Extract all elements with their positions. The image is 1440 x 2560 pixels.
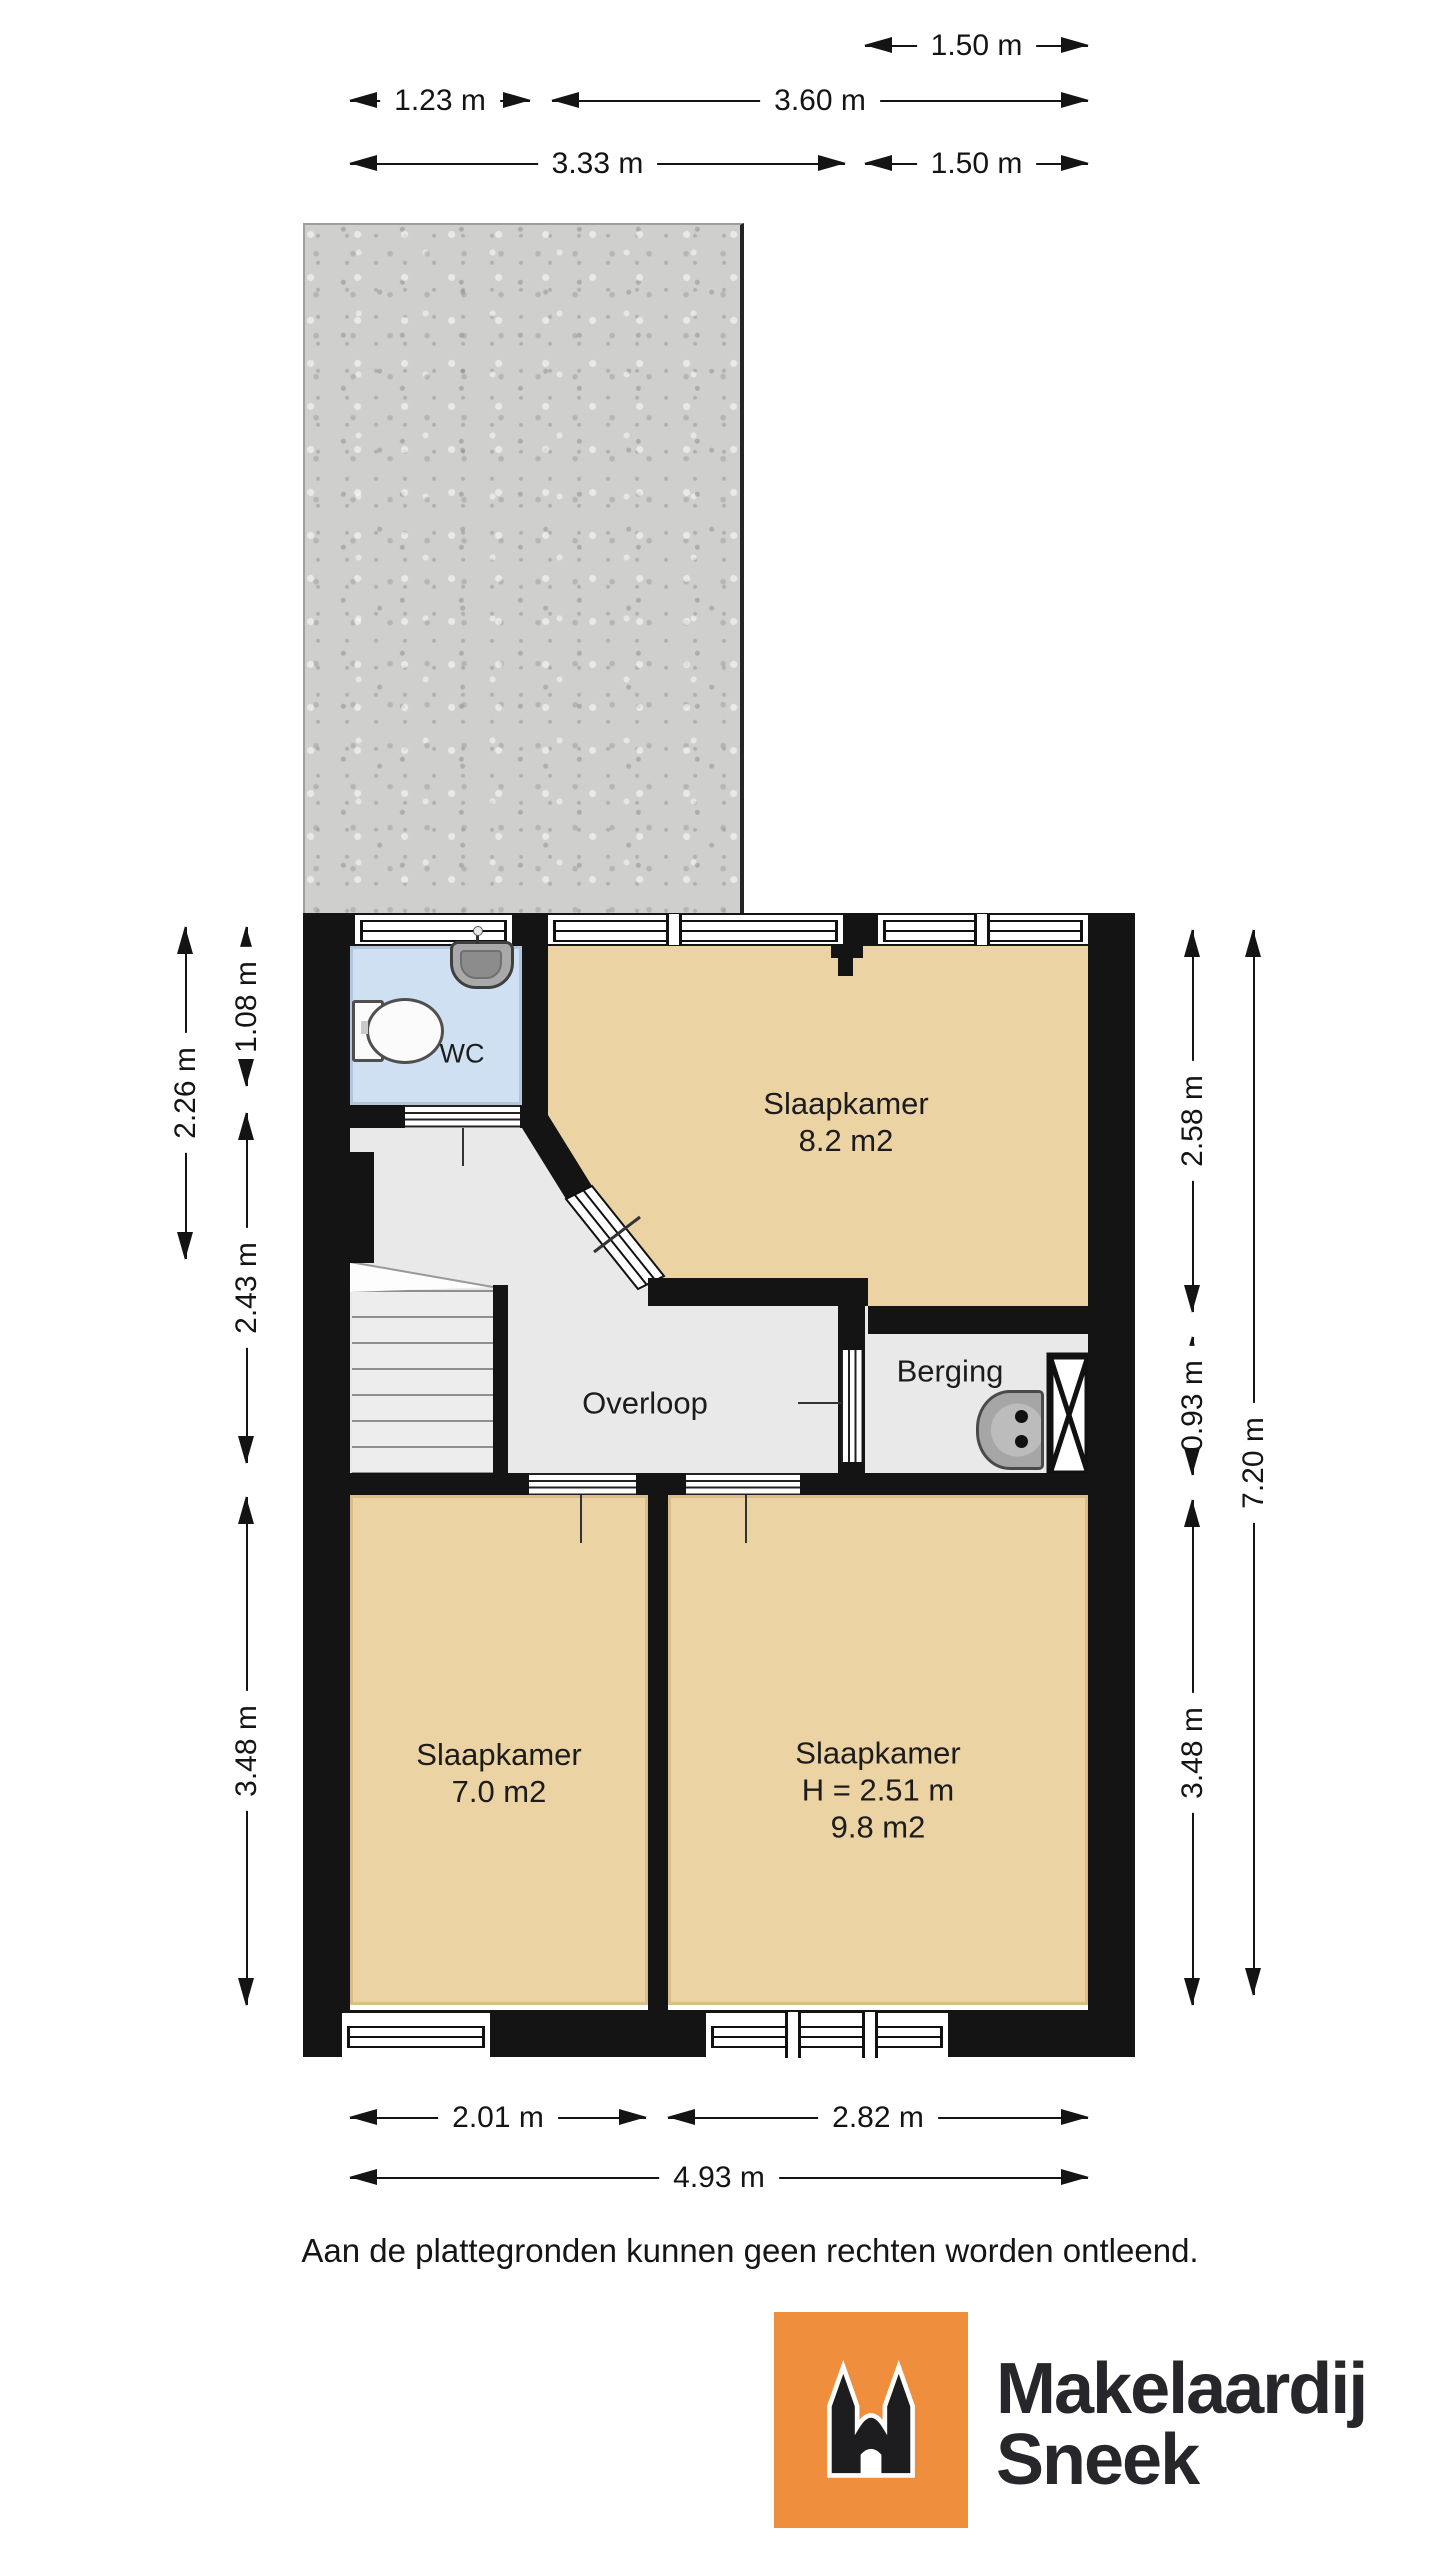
wall-left-bump: [350, 1152, 374, 1263]
wall-middle-bedrooms: [648, 1495, 668, 2010]
dim-label: 1.23 m: [380, 84, 500, 118]
window-slaapkamer-right: [706, 2013, 948, 2057]
door-swing-line: [580, 1495, 582, 1543]
dim-label: 0.93 m: [1176, 1346, 1210, 1466]
boiler-icon: [976, 1390, 1044, 1470]
room-area: 9.8 m2: [795, 1809, 960, 1846]
dim-label: 2.43 m: [230, 1228, 264, 1348]
room-label-slaapkamer-top: Slaapkamer 8.2 m2: [763, 1085, 928, 1159]
dim-label: 2.01 m: [438, 2101, 558, 2135]
wall-berging-top: [868, 1306, 1135, 1334]
dim-label: 2.82 m: [818, 2101, 938, 2135]
dim-label: 3.48 m: [230, 1691, 264, 1811]
door-wc: [405, 1105, 520, 1128]
window-mullion: [785, 2012, 801, 2058]
room-label-wc: WC: [440, 1036, 485, 1073]
dim-top-150-upper: 1.50 m: [865, 45, 1088, 47]
door-swing-line: [745, 1495, 747, 1543]
room-label-slaapkamer-left: Slaapkamer 7.0 m2: [416, 1736, 581, 1810]
chimney-bump-tab: [838, 958, 853, 976]
window-slaapkamer-top-2: [878, 915, 1088, 944]
church-icon: [809, 2353, 933, 2487]
floorplan-page: 1.50 m 1.23 m 3.60 m 3.33 m 1.50 m 2.26 …: [0, 0, 1440, 2560]
wall-slaapkamer-top-bottom: [648, 1278, 868, 1306]
logo-mark: [774, 2312, 968, 2528]
dim-left-226: 2.26 m: [185, 927, 187, 1259]
dim-label: 1.50 m: [917, 29, 1037, 63]
door-slaapkamer-left: [529, 1473, 636, 1495]
dim-right-348: 3.48 m: [1192, 1500, 1194, 2005]
door-swing-line: [798, 1402, 841, 1404]
room-label-overloop: Overloop: [582, 1385, 708, 1422]
window-mullion: [974, 914, 990, 945]
dim-label: 4.93 m: [659, 2161, 779, 2195]
dim-right-720: 7.20 m: [1253, 930, 1255, 1995]
logo-line-1: Makelaardij: [996, 2354, 1366, 2425]
dim-bottom-282: 2.82 m: [668, 2117, 1088, 2119]
sink-icon: [450, 941, 514, 989]
window-slaapkamer-top-1: [548, 915, 843, 944]
roof-terrace: [303, 223, 744, 915]
room-name: Slaapkamer: [763, 1085, 928, 1122]
dim-right-258: 2.58 m: [1192, 930, 1194, 1312]
dim-left-348: 3.48 m: [246, 1497, 248, 2005]
room-label-berging: Berging: [897, 1353, 1004, 1390]
dim-label: 3.33 m: [538, 147, 658, 181]
door-slaapkamer-right: [686, 1473, 800, 1495]
room-area: 7.0 m2: [416, 1773, 581, 1810]
dim-left-108: 1.08 m: [246, 927, 248, 1086]
room-name: Slaapkamer: [795, 1735, 960, 1772]
wall-stair-stub: [493, 1285, 508, 1475]
door-berging: [841, 1350, 862, 1462]
logo-wordmark: Makelaardij Sneek: [996, 2354, 1366, 2496]
dim-bottom-201: 2.01 m: [350, 2117, 646, 2119]
window-wc: [355, 915, 512, 944]
stairs: [352, 1290, 493, 1473]
room-area: 8.2 m2: [763, 1122, 928, 1159]
dim-label: 7.20 m: [1237, 1403, 1271, 1523]
dim-right-093: 0.93 m: [1192, 1337, 1194, 1475]
toilet-flush-button: [361, 1021, 368, 1034]
dim-label: 2.58 m: [1176, 1061, 1210, 1181]
wall-wc-right: [522, 913, 548, 1128]
dim-label: 1.50 m: [917, 147, 1037, 181]
dim-label: 2.26 m: [169, 1033, 203, 1153]
tap-icon-dot: [473, 926, 483, 936]
dim-label: 1.08 m: [230, 947, 264, 1067]
window-slaapkamer-left: [342, 2013, 490, 2057]
dim-top-360: 3.60 m: [552, 100, 1088, 102]
dim-label: 3.48 m: [1176, 1693, 1210, 1813]
dim-top-123: 1.23 m: [350, 100, 530, 102]
dim-bottom-493: 4.93 m: [350, 2177, 1088, 2179]
room-name: Slaapkamer: [416, 1736, 581, 1773]
room-label-slaapkamer-right: Slaapkamer H = 2.51 m 9.8 m2: [795, 1735, 960, 1846]
dim-top-333: 3.33 m: [350, 163, 845, 165]
disclaimer-text: Aan de plattegronden kunnen geen rechten…: [80, 2232, 1420, 2270]
dim-left-243: 2.43 m: [246, 1113, 248, 1463]
toilet-bowl-icon: [366, 998, 444, 1064]
room-ceiling-height: H = 2.51 m: [795, 1772, 960, 1809]
logo-line-2: Sneek: [996, 2425, 1366, 2496]
door-swing-line: [462, 1128, 464, 1166]
dim-label: 3.60 m: [760, 84, 880, 118]
dim-top-150-lower: 1.50 m: [865, 163, 1088, 165]
window-mullion: [666, 914, 682, 945]
window-mullion: [862, 2012, 878, 2058]
